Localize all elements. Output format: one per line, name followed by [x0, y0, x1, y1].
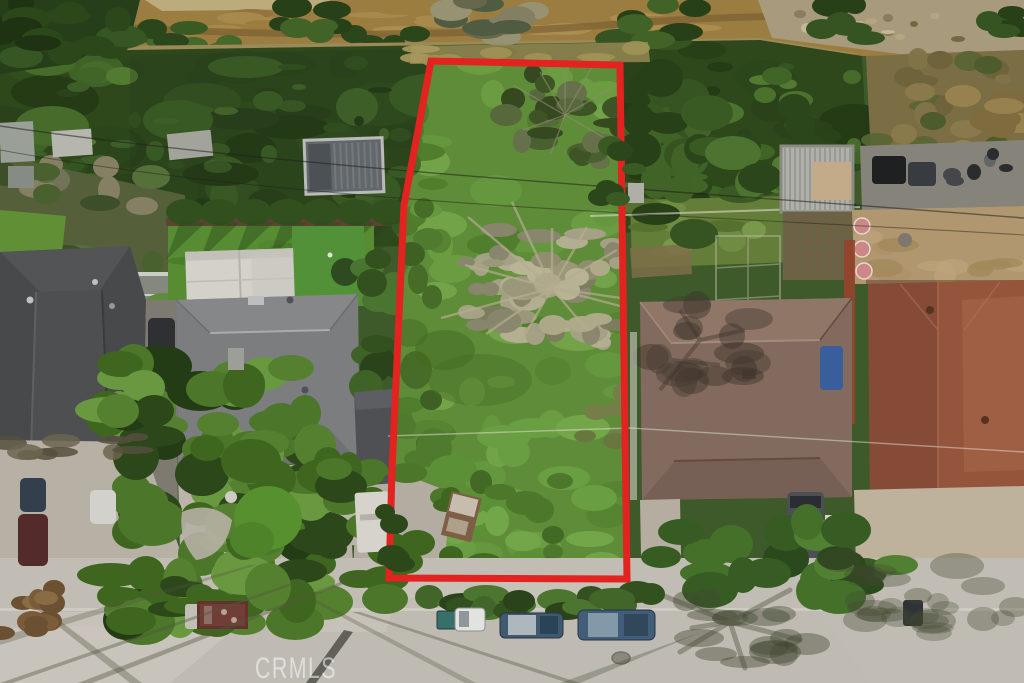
svg-text:CRMLS: CRMLS — [255, 652, 337, 683]
